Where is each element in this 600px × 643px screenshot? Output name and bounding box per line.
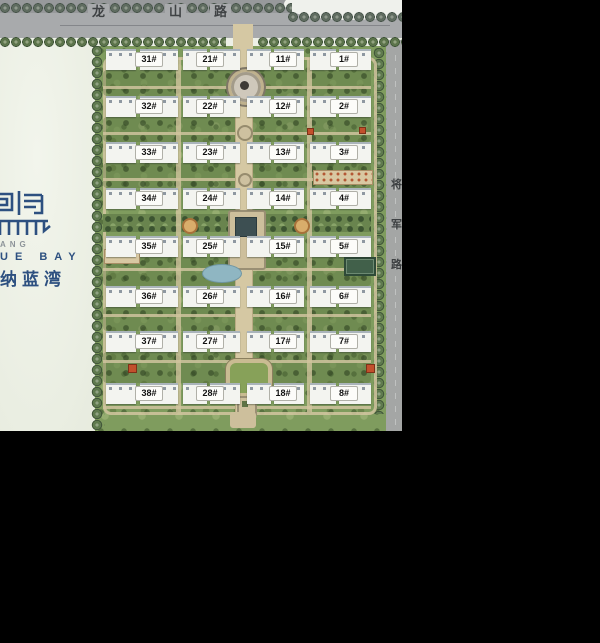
building-label-badge: 11# (269, 52, 297, 67)
building-label-badge: 27# (196, 334, 224, 349)
street-trees-row (288, 11, 402, 25)
building-label-badge: 15# (269, 239, 297, 254)
building-slab (247, 49, 271, 70)
road-name-char: 军 (391, 216, 402, 232)
building-label-badge: 32# (135, 99, 163, 114)
building-label-badge: 36# (135, 289, 163, 304)
building-row-cell: 26# (183, 286, 240, 310)
building-slab (106, 142, 136, 163)
building-slab (247, 286, 271, 307)
building-slab (106, 188, 136, 209)
building-row-cell: 7# (310, 331, 371, 355)
building-label-badge: 17# (269, 334, 297, 349)
building-label-badge: 26# (196, 289, 224, 304)
road-name-char: 山 (165, 4, 186, 20)
building-row-cell: 27# (183, 331, 240, 355)
road-centerline (60, 25, 390, 26)
building-slab (247, 142, 271, 163)
building-row-cell: 34# (106, 188, 178, 212)
building-label-badge: 6# (330, 289, 358, 304)
building-slab (247, 236, 271, 257)
building-slab (247, 96, 271, 117)
plaza-node (238, 173, 252, 187)
building-slab (106, 383, 136, 404)
building-row-cell: 11# (247, 49, 304, 73)
building-label-badge: 3# (330, 145, 358, 160)
building-label-badge: 13# (269, 145, 297, 160)
building-row-cell: 25# (183, 236, 240, 260)
building-row-cell: 16# (247, 286, 304, 310)
building-label-badge: 33# (135, 145, 163, 160)
building-row-cell: 18# (247, 383, 304, 407)
building-row-cell: 32# (106, 96, 178, 120)
right-road-name: 将 军 路 (391, 176, 402, 272)
building-row-cell: 21# (183, 49, 240, 73)
building-row-cell: 23# (183, 142, 240, 166)
road-name-char: 路 (391, 256, 402, 272)
building-slab (247, 331, 271, 352)
paved-court (313, 170, 373, 185)
gate-marker (359, 127, 366, 134)
building-slab (247, 188, 271, 209)
building-label-badge: 38# (135, 386, 163, 401)
building-label-badge: 24# (196, 191, 224, 206)
building-label-badge: 4# (330, 191, 358, 206)
building-label-badge: 5# (330, 239, 358, 254)
logo-chinese-name: 纳蓝湾 (0, 265, 66, 290)
plaza-node (182, 218, 198, 234)
north-entrance-drive (233, 24, 253, 50)
road-name-char: 路 (210, 4, 231, 20)
master-plan-map[interactable]: 31#21#11#1#32#22#12#2#33#23#13#3#34#24#1… (0, 0, 402, 431)
building-label-badge: 18# (269, 386, 297, 401)
building-row-cell: 2# (310, 96, 371, 120)
building-label-badge: 7# (330, 334, 358, 349)
road-name-char: 龙 (88, 4, 109, 20)
building-label-badge: 37# (135, 334, 163, 349)
building-slab (106, 331, 136, 352)
building-row-cell: 31# (106, 49, 178, 73)
letterbox-right (402, 0, 600, 643)
building-label-badge: 8# (330, 386, 358, 401)
road-name-char: 将 (391, 176, 402, 192)
building-slab (106, 286, 136, 307)
gate-marker (128, 364, 137, 373)
building-label-badge: 28# (196, 386, 224, 401)
building-label-badge: 25# (196, 239, 224, 254)
building-slab (106, 236, 136, 257)
building-label-badge: 14# (269, 191, 297, 206)
building-row-cell: 3# (310, 142, 371, 166)
south-entrance (230, 412, 256, 428)
building-row-cell: 4# (310, 188, 371, 212)
building-row-cell: 35# (106, 236, 178, 260)
building-label-badge: 1# (330, 52, 358, 67)
building-label-badge: 34# (135, 191, 163, 206)
building-row-cell: 12# (247, 96, 304, 120)
logo-emblem (0, 188, 88, 238)
plaza-node (237, 125, 253, 141)
pool (235, 217, 257, 237)
gate-marker (307, 128, 314, 135)
building-row-cell: 17# (247, 331, 304, 355)
logo-english-name: UE BAY (0, 251, 83, 263)
building-row-cell: 36# (106, 286, 178, 310)
building-slab (247, 383, 271, 404)
building-row-cell: 38# (106, 383, 178, 407)
building-row-cell: 5# (310, 236, 371, 260)
street-trees-row (0, 36, 226, 50)
building-row-cell: 14# (247, 188, 304, 212)
pond (202, 264, 242, 283)
building-row-cell: 13# (247, 142, 304, 166)
building-label-badge: 22# (196, 99, 224, 114)
building-label-badge: 35# (135, 239, 163, 254)
plaza-node (294, 218, 310, 234)
building-row-cell: 37# (106, 331, 178, 355)
gate-marker (366, 364, 375, 373)
building-label-badge: 31# (135, 52, 163, 67)
building-label-badge: 2# (330, 99, 358, 114)
screenshot-canvas: 31#21#11#1#32#22#12#2#33#23#13#3#34#24#1… (0, 0, 600, 643)
logo-subtext: ANG (0, 240, 30, 249)
building-row-cell: 1# (310, 49, 371, 73)
building-row-cell: 22# (183, 96, 240, 120)
street-trees-row (0, 2, 292, 16)
building-label-badge: 21# (196, 52, 224, 67)
building-row-cell: 15# (247, 236, 304, 260)
letterbox-bottom (0, 431, 402, 643)
building-label-badge: 12# (269, 99, 297, 114)
building-row-cell: 8# (310, 383, 371, 407)
building-row-cell: 33# (106, 142, 178, 166)
building-row-cell: 28# (183, 383, 240, 407)
building-slab (106, 49, 136, 70)
building-slab (106, 96, 136, 117)
building-label-badge: 16# (269, 289, 297, 304)
building-label-badge: 23# (196, 145, 224, 160)
building-row-cell: 6# (310, 286, 371, 310)
building-row-cell: 24# (183, 188, 240, 212)
